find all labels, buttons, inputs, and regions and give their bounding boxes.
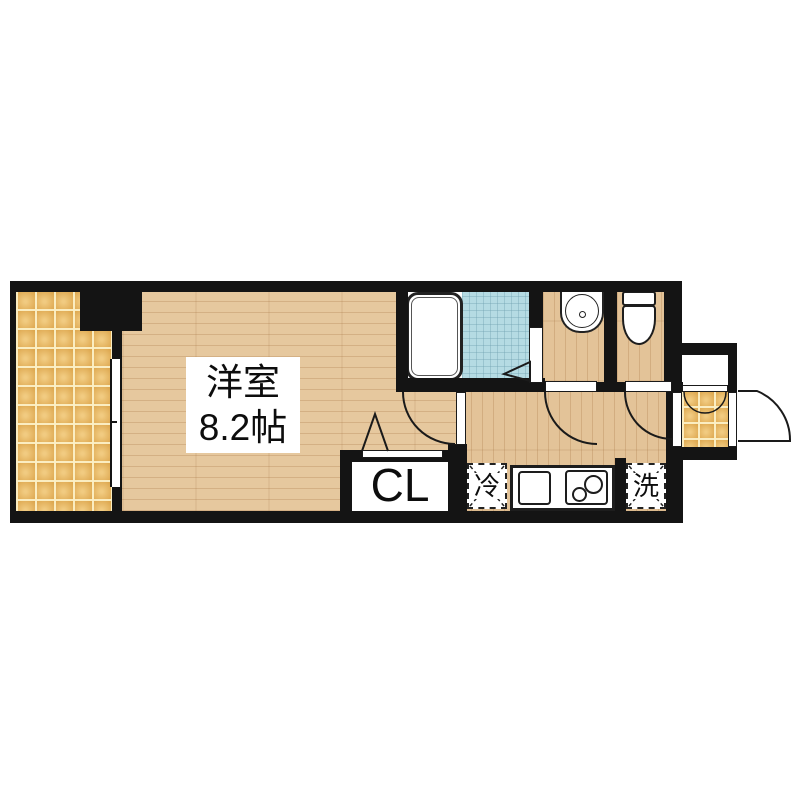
closet-label-text: CL — [371, 458, 430, 512]
washer-label: 洗 — [626, 463, 666, 509]
bath-folding-door-icon — [504, 362, 530, 381]
shoe-cabinet-door-arcs — [684, 392, 726, 413]
floorplan-canvas: 洋室 8.2帖 CL 冷 洗 — [0, 0, 800, 800]
main-room-size: 8.2帖 — [199, 405, 287, 450]
washer-label-text: 洗 — [632, 473, 660, 499]
door-swing-toilet — [625, 392, 672, 439]
closet-folding-door-icon — [362, 414, 388, 451]
closet-label: CL — [352, 460, 448, 509]
main-room-name: 洋室 — [206, 360, 280, 405]
door-swing-main-room — [403, 392, 455, 444]
refrigerator-label-text: 冷 — [473, 473, 501, 499]
door-symbols — [0, 0, 800, 800]
entry-door-swing — [738, 391, 790, 441]
refrigerator-label: 冷 — [467, 463, 507, 509]
door-swing-washroom — [545, 392, 597, 444]
main-room-label: 洋室 8.2帖 — [186, 357, 300, 453]
